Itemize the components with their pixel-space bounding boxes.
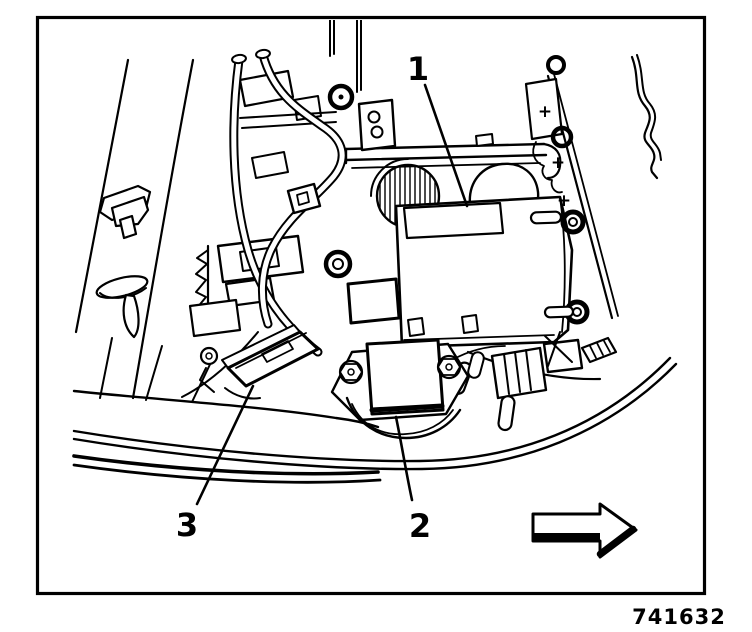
callout-2-label: 2 [409, 507, 431, 545]
callout-3-label: 3 [176, 506, 198, 544]
figure-number: 741632 [632, 605, 726, 629]
leader-line-2 [396, 417, 412, 500]
module-assembly [326, 57, 618, 347]
left-trim-panel [76, 60, 193, 398]
push-pin-clip-lower [95, 272, 150, 337]
direction-arrow-icon [533, 504, 636, 557]
service-manual-illustration: + + + 1 2 3 741632 [0, 0, 752, 632]
two-hole-bracket [359, 100, 395, 150]
plus-mark-1: + [538, 102, 552, 122]
screw-mid-left [326, 252, 350, 276]
relay-module [332, 340, 468, 438]
relay-body [367, 340, 443, 414]
callout-1-label: 1 [407, 50, 429, 88]
loose-wire [632, 55, 661, 178]
cable-clamp [288, 184, 320, 213]
plus-mark-3: + [557, 191, 571, 211]
module-label-plate [404, 203, 503, 238]
plus-mark-2: + [551, 153, 565, 173]
push-pin-clip-upper [100, 186, 150, 238]
line-art-canvas: + + + 1 2 3 741632 [0, 0, 752, 632]
harness-connector [200, 325, 318, 399]
relay-screw-right [438, 356, 460, 378]
screw-bracket-top [548, 57, 564, 73]
relay-screw-left [340, 361, 362, 383]
